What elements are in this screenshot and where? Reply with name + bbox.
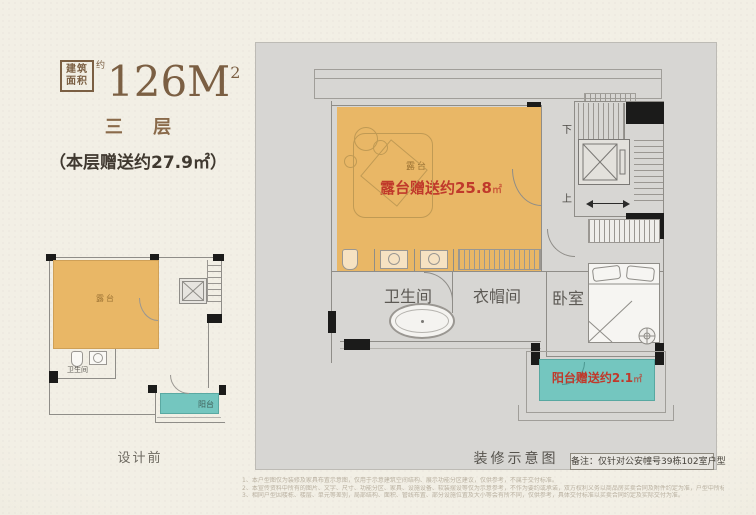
wall-segment <box>340 348 541 349</box>
after-plan-caption: 装修示意图 <box>446 448 586 468</box>
bathtub-icon <box>389 303 455 339</box>
balcony-sill-outline <box>518 405 674 421</box>
wardrobe-hangers-icon <box>588 219 660 243</box>
area-value: 126M2 <box>107 52 240 103</box>
door-arc <box>424 272 453 301</box>
arrow-left-icon <box>586 200 593 208</box>
balcony-gift-annotation: 阳台赠送约2.1㎡ <box>540 369 654 386</box>
area-box-seal: 建筑 面积 <box>60 60 94 92</box>
wall-segment <box>546 271 547 357</box>
bathroom-label: 卫生间 <box>67 365 88 375</box>
arrow-line <box>592 203 624 204</box>
elevator-icon <box>579 140 629 184</box>
wall-segment <box>331 105 542 106</box>
wall-segment <box>49 378 116 379</box>
balcony-gift-text: 阳台赠送约2.1 <box>552 371 633 385</box>
cloakroom-label: 衣帽间 <box>464 283 530 307</box>
floor-plan-after-panel: 露台 露台赠送约25.8㎡ 下 上 卫生间 衣帽间 卧室 <box>255 42 717 470</box>
floor-plan-before: 露台 卫生间 阳台 <box>40 244 238 434</box>
footnote-line: 1、本户型图仅为装修及家具布置示意图，仅用于示意建筑空间结构、展示功能分区建议，… <box>242 477 724 485</box>
bedroom-label: 卧室 <box>552 285 584 309</box>
wall-segment <box>208 318 209 388</box>
wall-block <box>626 102 664 124</box>
area-badge: 建筑 面积 约 126M2 <box>60 52 240 103</box>
wall-segment <box>49 257 222 258</box>
balcony-gift-unit: ㎡ <box>633 375 642 385</box>
wall-segment <box>49 414 156 415</box>
closet-hangers-icon <box>458 249 541 270</box>
area-approx-label: 约 <box>96 58 105 71</box>
sink-bowl-icon <box>388 253 400 265</box>
area-box-line2: 面积 <box>66 76 88 88</box>
stair-treads <box>578 103 625 139</box>
elevator <box>578 139 630 185</box>
door-arc <box>170 375 189 394</box>
stair-treads <box>634 139 663 201</box>
wall-block <box>219 385 226 395</box>
wall-block <box>49 371 58 383</box>
wall-segment <box>452 271 453 313</box>
remark-note: 备注：仅针对公安幢号39栋102室户型 <box>570 453 714 470</box>
wall-segment <box>49 257 50 415</box>
stair-direction-arrow <box>586 200 630 208</box>
before-plan-caption: 设计前 <box>92 447 188 466</box>
round-table-icon <box>638 327 656 345</box>
area-box-line1: 建筑 <box>66 64 88 76</box>
partition-line <box>453 249 454 271</box>
plant-icon <box>344 155 357 168</box>
wall-segment <box>221 257 222 319</box>
stairs-down-label: 下 <box>562 121 572 136</box>
footnote-line: 3、相同户型因楼栋、楼层、单元等差别，局部结构、面积、管线布置、部分设施位置及大… <box>242 492 724 500</box>
floor-title: 三 层 <box>8 113 268 139</box>
partition-line <box>414 249 415 271</box>
plant-icon <box>373 140 388 155</box>
disclaimer-footnotes: 1、本户型图仅为装修及家具布置示意图，仅用于示意建筑空间结构、展示功能分区建议，… <box>242 477 724 500</box>
wall-segment <box>115 348 116 378</box>
wall-block <box>207 314 222 323</box>
partition-line <box>374 249 375 271</box>
wall-block <box>328 311 336 333</box>
elevator-icon <box>180 279 206 303</box>
door-arc <box>547 229 575 257</box>
wall-segment <box>541 105 542 271</box>
balcony-label: 阳台 <box>198 399 214 410</box>
arrow-right-icon <box>623 200 630 208</box>
wall-segment <box>155 422 225 423</box>
sink-bowl-icon <box>93 353 103 363</box>
area-number: 126M <box>107 57 230 106</box>
terrace-gift-unit: ㎡ <box>492 185 502 196</box>
sink-bowl-icon <box>428 253 440 265</box>
wall-block <box>148 385 157 393</box>
balcony-area: 阳台 <box>160 393 219 414</box>
wall-segment <box>155 389 156 422</box>
floor-bonus-subtitle: （本层赠送约27.9㎡） <box>8 148 268 173</box>
elevator <box>179 278 207 304</box>
wall-block <box>344 339 370 350</box>
stairs-up-label: 上 <box>562 190 572 205</box>
bathtub-drain <box>421 320 424 323</box>
balcony-area: 阳台赠送约2.1㎡ <box>539 359 655 401</box>
toilet-icon <box>342 249 358 270</box>
area-superscript: 2 <box>230 63 240 82</box>
wall-segment <box>340 341 541 342</box>
wall-segment <box>157 417 221 418</box>
stair-treads <box>207 260 221 302</box>
footnote-line: 2、本宣传资料中所有的图片、文字、尺寸、功能分区、家具、设施设备、软装摆设等仅为… <box>242 485 724 493</box>
